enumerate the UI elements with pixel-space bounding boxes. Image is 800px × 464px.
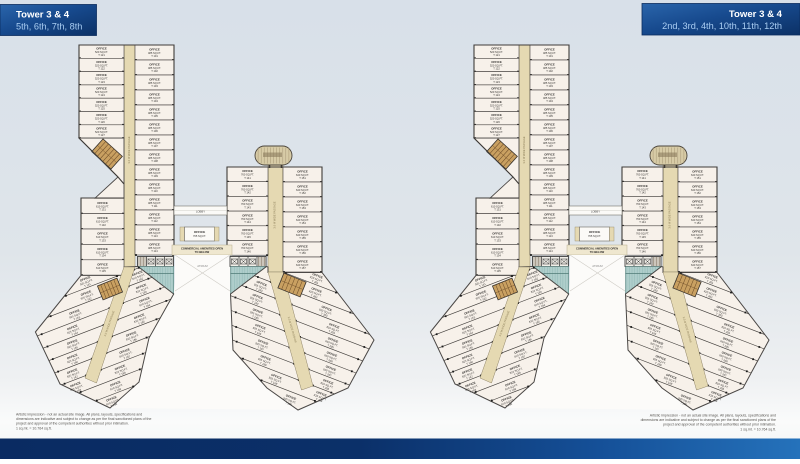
- svg-text:T 104: T 104: [151, 99, 158, 103]
- svg-text:T 107: T 107: [546, 144, 553, 148]
- svg-text:OFFICE: OFFICE: [544, 62, 555, 66]
- svg-text:OFFICE: OFFICE: [491, 100, 502, 104]
- svg-text:COMMERCIAL AMENITIES OPEN: COMMERCIAL AMENITIES OPEN: [576, 247, 618, 251]
- svg-text:3.0 M WIDE PASSAGE: 3.0 M WIDE PASSAGE: [273, 201, 277, 228]
- svg-text:OFFICE: OFFICE: [297, 229, 308, 233]
- svg-text:T 111: T 111: [546, 204, 553, 208]
- svg-text:T 106: T 106: [151, 129, 158, 133]
- svg-text:T 146: T 146: [244, 249, 251, 253]
- svg-text:OFFICE: OFFICE: [97, 262, 108, 266]
- svg-text:OFFICE: OFFICE: [297, 184, 308, 188]
- svg-text:OFFICE: OFFICE: [492, 262, 503, 266]
- svg-text:T 155: T 155: [299, 236, 306, 240]
- svg-text:T 144: T 144: [639, 220, 646, 224]
- svg-text:OFFICE: OFFICE: [544, 107, 555, 111]
- svg-text:T 144: T 144: [244, 220, 251, 224]
- svg-text:T 131: T 131: [494, 208, 501, 212]
- svg-text:OFFICE: OFFICE: [692, 199, 703, 203]
- svg-text:OFFICE: OFFICE: [149, 47, 160, 51]
- svg-text:T 108: T 108: [546, 159, 553, 163]
- svg-text:T 102: T 102: [151, 69, 158, 73]
- svg-text:OFFICE: OFFICE: [297, 169, 308, 173]
- svg-text:OFFICE: OFFICE: [242, 228, 253, 232]
- svg-text:OFFICE: OFFICE: [297, 214, 308, 218]
- svg-text:T 135: T 135: [494, 269, 501, 273]
- svg-text:T 133: T 133: [99, 238, 106, 242]
- svg-text:OFFICE: OFFICE: [242, 213, 253, 217]
- svg-text:T 114: T 114: [151, 249, 158, 253]
- svg-text:OFFICE: OFFICE: [492, 247, 503, 251]
- svg-text:T 154: T 154: [694, 221, 701, 225]
- svg-text:T 108: T 108: [151, 159, 158, 163]
- svg-text:OFFICE: OFFICE: [242, 243, 253, 247]
- svg-text:OFFICE: OFFICE: [96, 113, 107, 117]
- svg-text:OFFICE: OFFICE: [692, 184, 703, 188]
- svg-text:T 109: T 109: [151, 174, 158, 178]
- svg-text:T 143: T 143: [244, 205, 251, 209]
- svg-text:T 151: T 151: [299, 176, 306, 180]
- svg-text:T 113: T 113: [151, 234, 158, 238]
- svg-text:OFFICE: OFFICE: [96, 87, 107, 91]
- svg-text:OFFICE: OFFICE: [544, 212, 555, 216]
- svg-text:T 135: T 135: [99, 269, 106, 273]
- svg-text:OFFICE: OFFICE: [492, 232, 503, 236]
- svg-text:T 155: T 155: [694, 236, 701, 240]
- svg-text:T 143: T 143: [639, 205, 646, 209]
- svg-text:OFFICE: OFFICE: [692, 244, 703, 248]
- svg-text:OFFICE: OFFICE: [297, 199, 308, 203]
- svg-text:T 145: T 145: [639, 235, 646, 239]
- svg-text:OFFICE: OFFICE: [297, 244, 308, 248]
- svg-text:T 103: T 103: [546, 84, 553, 88]
- svg-text:T 110: T 110: [151, 189, 158, 193]
- svg-text:OFFICE: OFFICE: [491, 87, 502, 91]
- svg-text:3.0 M WIDE PASSAGE: 3.0 M WIDE PASSAGE: [127, 136, 131, 163]
- svg-text:OFFICE: OFFICE: [491, 73, 502, 77]
- svg-text:OFFICE: OFFICE: [692, 214, 703, 218]
- svg-text:T 102: T 102: [546, 69, 553, 73]
- svg-text:T 124: T 124: [98, 93, 105, 97]
- svg-text:T 107: T 107: [151, 144, 158, 148]
- svg-text:T 105: T 105: [151, 114, 158, 118]
- svg-text:OFFICE: OFFICE: [637, 213, 648, 217]
- svg-text:OFFICE: OFFICE: [149, 92, 160, 96]
- svg-text:OFFICE: OFFICE: [96, 126, 107, 130]
- svg-text:project and approval of the co: project and approval of the competent au…: [663, 423, 776, 427]
- svg-text:T 134: T 134: [494, 254, 501, 258]
- svg-text:OFFICE: OFFICE: [242, 184, 253, 188]
- svg-text:TO BELOW: TO BELOW: [590, 250, 605, 254]
- svg-text:T 121: T 121: [493, 53, 500, 57]
- svg-text:T 103: T 103: [151, 84, 158, 88]
- svg-text:T 145: T 145: [244, 235, 251, 239]
- svg-text:T 146: T 146: [639, 249, 646, 253]
- svg-text:OFFICE: OFFICE: [544, 167, 555, 171]
- svg-text:OFFICE: OFFICE: [692, 169, 703, 173]
- svg-text:OFFICE: OFFICE: [297, 259, 308, 263]
- svg-text:OFFICE: OFFICE: [242, 199, 253, 203]
- svg-text:T 123: T 123: [98, 80, 105, 84]
- svg-text:OFFICE: OFFICE: [544, 122, 555, 126]
- svg-text:OFFICE: OFFICE: [97, 232, 108, 236]
- svg-text:OFFICE: OFFICE: [544, 77, 555, 81]
- svg-text:T 132: T 132: [99, 223, 106, 227]
- svg-text:T 112: T 112: [151, 219, 158, 223]
- svg-text:dimensions are indicative and: dimensions are indicative and subject to…: [641, 418, 776, 422]
- svg-text:T 106: T 106: [546, 129, 553, 133]
- svg-text:T 134: T 134: [99, 254, 106, 258]
- svg-text:OFFICE: OFFICE: [544, 197, 555, 201]
- svg-text:OFFICE: OFFICE: [491, 47, 502, 51]
- svg-text:T 124: T 124: [493, 93, 500, 97]
- svg-text:project and approval of the co: project and approval of the competent au…: [16, 422, 129, 426]
- svg-text:OFFICE: OFFICE: [492, 216, 503, 220]
- svg-text:T 105: T 105: [546, 114, 553, 118]
- svg-text:T 142: T 142: [639, 191, 646, 195]
- svg-text:OFFICE: OFFICE: [97, 247, 108, 251]
- svg-text:OFFICE: OFFICE: [96, 47, 107, 51]
- svg-text:T 111: T 111: [151, 204, 158, 208]
- svg-text:T 141: T 141: [639, 176, 646, 180]
- svg-text:TO BELOW: TO BELOW: [195, 250, 210, 254]
- svg-text:T 126: T 126: [493, 120, 500, 124]
- svg-text:T 110: T 110: [546, 189, 553, 193]
- svg-text:T 142: T 142: [244, 191, 251, 195]
- svg-text:T 125: T 125: [493, 107, 500, 111]
- svg-text:T 113: T 113: [546, 234, 553, 238]
- svg-text:OFFICE: OFFICE: [492, 201, 503, 205]
- svg-text:OFFICE: OFFICE: [544, 182, 555, 186]
- svg-text:LOBBY: LOBBY: [591, 209, 600, 213]
- svg-text:Artistic impression - not an a: Artistic impression - not an actual site…: [16, 413, 142, 417]
- svg-text:OFFICE: OFFICE: [692, 229, 703, 233]
- svg-text:OFFICE: OFFICE: [149, 122, 160, 126]
- svg-text:OFFICE: OFFICE: [194, 230, 205, 234]
- svg-text:T 153: T 153: [694, 206, 701, 210]
- svg-text:T 114: T 114: [546, 249, 553, 253]
- svg-text:Artistic impression - not an a: Artistic impression - not an actual site…: [650, 414, 776, 418]
- svg-text:765 SQ.FT.: 765 SQ.FT.: [588, 234, 601, 238]
- svg-text:OFFICE: OFFICE: [491, 60, 502, 64]
- svg-text:LOBBY: LOBBY: [196, 209, 205, 213]
- svg-text:OFFICE: OFFICE: [97, 201, 108, 205]
- svg-text:T 153: T 153: [299, 206, 306, 210]
- svg-text:3.0 M WIDE PASSAGE: 3.0 M WIDE PASSAGE: [522, 136, 526, 163]
- svg-text:T 152: T 152: [694, 191, 701, 195]
- svg-text:T 152: T 152: [299, 191, 306, 195]
- svg-text:COMMERCIAL AMENITIES OPEN: COMMERCIAL AMENITIES OPEN: [181, 247, 223, 251]
- svg-text:OFFICE: OFFICE: [637, 243, 648, 247]
- svg-text:T 156: T 156: [299, 251, 306, 255]
- svg-text:T 122: T 122: [493, 67, 500, 71]
- svg-text:OFFICE: OFFICE: [544, 137, 555, 141]
- svg-text:OFFICE: OFFICE: [544, 152, 555, 156]
- svg-text:OFFICE: OFFICE: [637, 184, 648, 188]
- svg-text:T 123: T 123: [493, 80, 500, 84]
- svg-text:T 157: T 157: [299, 266, 306, 270]
- svg-text:OFFICE: OFFICE: [149, 167, 160, 171]
- svg-text:ATRIUM: ATRIUM: [197, 264, 208, 268]
- svg-text:1 sq.mt. = 10.764 sq.ft.: 1 sq.mt. = 10.764 sq.ft.: [740, 427, 776, 431]
- svg-text:OFFICE: OFFICE: [149, 227, 160, 231]
- svg-text:OFFICE: OFFICE: [242, 169, 253, 173]
- svg-text:T 121: T 121: [98, 53, 105, 57]
- svg-text:OFFICE: OFFICE: [637, 169, 648, 173]
- svg-text:OFFICE: OFFICE: [637, 199, 648, 203]
- svg-text:OFFICE: OFFICE: [149, 182, 160, 186]
- svg-text:ATRIUM: ATRIUM: [592, 264, 603, 268]
- svg-text:1 sq.mt. = 10.764 sq.ft.: 1 sq.mt. = 10.764 sq.ft.: [16, 426, 52, 430]
- svg-text:OFFICE: OFFICE: [149, 242, 160, 246]
- svg-text:T 122: T 122: [98, 67, 105, 71]
- svg-text:OFFICE: OFFICE: [149, 62, 160, 66]
- svg-text:OFFICE: OFFICE: [97, 216, 108, 220]
- svg-text:OFFICE: OFFICE: [692, 259, 703, 263]
- svg-text:T 154: T 154: [299, 221, 306, 225]
- svg-text:OFFICE: OFFICE: [96, 60, 107, 64]
- svg-text:T 112: T 112: [546, 219, 553, 223]
- svg-text:OFFICE: OFFICE: [544, 47, 555, 51]
- svg-text:2nd, 3rd, 4th, 10th, 11th, 12t: 2nd, 3rd, 4th, 10th, 11th, 12th: [662, 21, 782, 31]
- svg-text:T 127: T 127: [493, 133, 500, 137]
- svg-text:T 125: T 125: [98, 107, 105, 111]
- svg-text:OFFICE: OFFICE: [544, 227, 555, 231]
- svg-text:OFFICE: OFFICE: [149, 212, 160, 216]
- svg-text:OFFICE: OFFICE: [589, 230, 600, 234]
- svg-text:T 101: T 101: [546, 54, 553, 58]
- svg-text:OFFICE: OFFICE: [544, 242, 555, 246]
- svg-text:T 132: T 132: [494, 223, 501, 227]
- svg-text:dimensions are indicative and: dimensions are indicative and subject to…: [16, 417, 151, 421]
- svg-text:OFFICE: OFFICE: [637, 228, 648, 232]
- svg-text:T 109: T 109: [546, 174, 553, 178]
- svg-text:OFFICE: OFFICE: [491, 126, 502, 130]
- svg-text:OFFICE: OFFICE: [149, 107, 160, 111]
- svg-text:OFFICE: OFFICE: [149, 77, 160, 81]
- svg-text:OFFICE: OFFICE: [149, 197, 160, 201]
- svg-text:OFFICE: OFFICE: [149, 137, 160, 141]
- svg-text:T 127: T 127: [98, 133, 105, 137]
- svg-text:5th, 6th, 7th, 8th: 5th, 6th, 7th, 8th: [16, 22, 82, 32]
- svg-text:T 141: T 141: [244, 176, 251, 180]
- svg-text:Tower 3 & 4: Tower 3 & 4: [729, 9, 783, 20]
- svg-text:T 126: T 126: [98, 120, 105, 124]
- svg-text:OFFICE: OFFICE: [96, 73, 107, 77]
- svg-text:3.0 M WIDE PASSAGE: 3.0 M WIDE PASSAGE: [668, 201, 672, 228]
- svg-text:T 133: T 133: [494, 238, 501, 242]
- svg-text:OFFICE: OFFICE: [491, 113, 502, 117]
- svg-text:T 131: T 131: [99, 208, 106, 212]
- svg-text:T 157: T 157: [694, 266, 701, 270]
- svg-text:765 SQ.FT.: 765 SQ.FT.: [193, 234, 206, 238]
- svg-text:OFFICE: OFFICE: [544, 92, 555, 96]
- svg-text:T 104: T 104: [546, 99, 553, 103]
- svg-text:Tower 3 & 4: Tower 3 & 4: [16, 10, 70, 21]
- svg-text:OFFICE: OFFICE: [96, 100, 107, 104]
- svg-text:T 156: T 156: [694, 251, 701, 255]
- svg-text:T 151: T 151: [694, 176, 701, 180]
- svg-text:OFFICE: OFFICE: [149, 152, 160, 156]
- svg-text:T 101: T 101: [151, 54, 158, 58]
